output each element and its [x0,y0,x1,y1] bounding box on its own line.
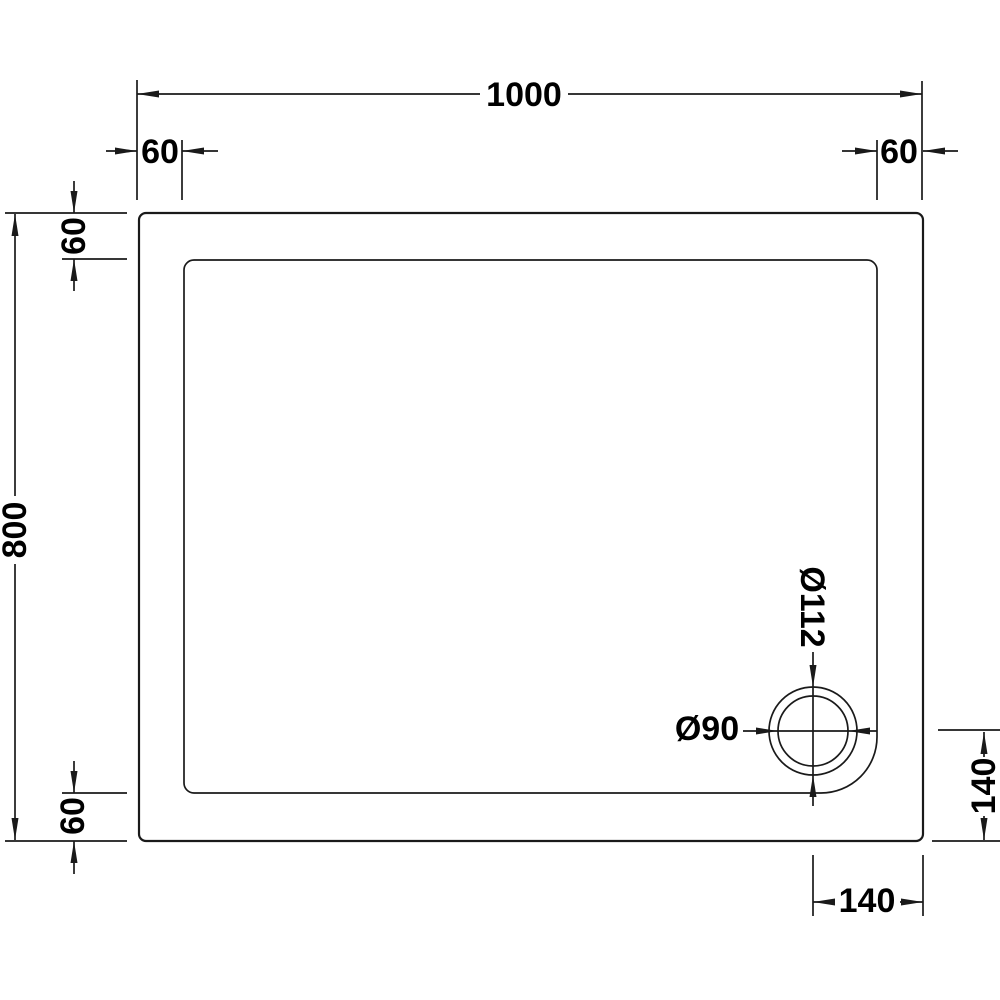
dim-drain-outer-diameter-label: Ø112 [793,566,831,647]
dim-inset-top-right-label: 60 [880,133,918,171]
dim-drain-from-right-label: 140 [839,882,896,920]
shower-tray-plan-drawing: 1000 60 60 800 60 60 [0,0,1000,1000]
dim-overall-width-label: 1000 [486,76,562,114]
dim-drain-from-bottom-label: 140 [965,758,1000,815]
arrowhead-left [137,91,159,98]
dim-inset-top-left-label: 60 [141,133,179,171]
dim-inset-top-left: 60 [106,133,218,171]
dim-inset-left-bottom: 60 [54,761,92,874]
dim-drain-inner-diameter-label: Ø90 [675,710,739,748]
dim-inset-left-top: 60 [55,181,93,291]
dim-overall-depth-label: 800 [0,502,34,559]
tray-outer-outline [139,213,923,841]
dim-inset-top-right: 60 [842,133,958,171]
dim-overall-width: 1000 [137,76,922,114]
dim-inset-left-bottom-label: 60 [54,797,92,835]
arrowhead-right [900,91,922,98]
dim-drain-from-bottom: 140 [965,732,1000,840]
dim-inset-left-top-label: 60 [55,217,93,255]
dim-drain-from-right: 140 [813,882,923,920]
extension-lines [5,80,1000,916]
technical-drawing-page: 1000 60 60 800 60 60 [0,0,1000,1000]
dim-overall-depth: 800 [0,214,34,840]
